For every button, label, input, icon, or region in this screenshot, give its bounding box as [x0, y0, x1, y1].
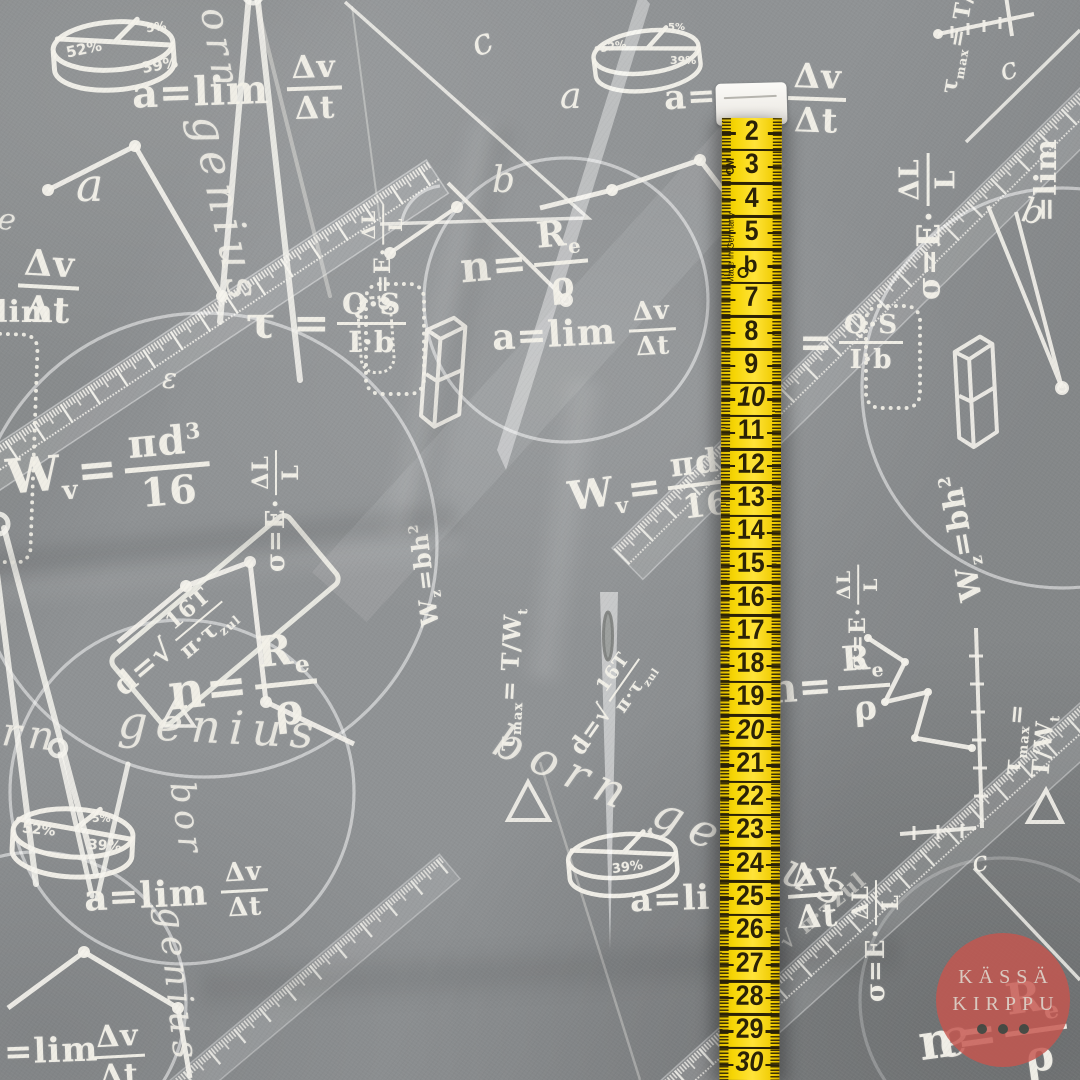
formula-lim-bottom-corner: =lim — [3, 1032, 98, 1069]
tape-number: 5 — [722, 215, 782, 249]
watermark-dots-icon — [977, 1024, 1029, 1034]
script-rn: rn — [0, 709, 64, 761]
tape-body: CM Made in Germany 2345b7891011121314151… — [719, 118, 782, 1080]
pie-label-5-bottom-left: 5% — [92, 812, 111, 825]
tape-number: 25 — [720, 880, 780, 914]
tape-number: 26 — [720, 913, 780, 947]
store-watermark: KÄSSÄ KIRPPU — [936, 933, 1070, 1067]
tape-number: 27 — [720, 947, 780, 981]
tape-number: 2 — [722, 118, 782, 149]
tape-number: 30 — [719, 1046, 779, 1080]
formula-stress-mid-small: σ=E· ΔLL — [360, 205, 405, 311]
watermark-line1: KÄSSÄ — [952, 966, 1054, 989]
tape-number: 16 — [721, 581, 781, 615]
tape-number: 18 — [720, 647, 780, 681]
formula-accel-middle: a=lim ΔvΔt — [491, 298, 678, 368]
tape-number: 20 — [720, 714, 780, 748]
formula-flow-middle: n= Reρ — [456, 215, 591, 312]
measuring-tape: CM Made in Germany 2345b7891011121314151… — [719, 84, 782, 1080]
dotted-box-small — [355, 295, 396, 375]
tape-number: 23 — [720, 814, 780, 848]
pie-label-39-bottom-left: 39% — [87, 837, 122, 855]
tape-number: 17 — [721, 614, 781, 648]
tape-number: 7 — [721, 281, 781, 315]
pie-label-5-top-middle: 5% — [668, 22, 685, 33]
tape-number: 4 — [722, 182, 782, 216]
tape-number: 28 — [720, 980, 780, 1014]
formula-accel-bottom-corner-frac: ΔvΔt — [90, 1021, 146, 1080]
tape-half-cm-tick — [768, 265, 782, 267]
tape-number: 10 — [721, 381, 781, 415]
formula-accel-top-right-lhs: a= — [663, 79, 717, 116]
formula-taumax-right-edge: τmax= T/Wt — [999, 679, 1065, 779]
label-b-triangle: b — [492, 160, 515, 201]
tape-half-cm-tick — [722, 265, 736, 267]
formula-stress-right: σ=E· ΔLL — [897, 153, 960, 300]
eraser-box-drawing-right — [954, 336, 998, 448]
tape-number: 22 — [720, 780, 780, 814]
pie-label-52-bottom-left: 52% — [21, 820, 56, 839]
formula-lim-left-edge: =lim — [0, 298, 54, 328]
tape-number: 11 — [721, 414, 781, 448]
pie-label-5-top-left: 5% — [145, 19, 167, 36]
tape-number: 24 — [720, 847, 780, 881]
tape-number: 29 — [719, 1013, 779, 1047]
tape-number: 19 — [720, 681, 780, 715]
tape-number: 14 — [721, 514, 781, 548]
fabric-product-photo: a=lim ΔvΔt a= ΔvΔt e ΔvΔt =lim τ = Q·SI·… — [0, 0, 1080, 1080]
axis-doodle-drawing — [900, 17, 1000, 840]
tape-number: 21 — [720, 747, 780, 781]
tape-number: 12 — [721, 448, 781, 482]
tape-number: 9 — [721, 348, 781, 382]
tape-number: 8 — [721, 315, 781, 349]
formula-stress-right-small: σ=E· ΔLL — [835, 565, 880, 671]
watermark-line2: KIRPPU — [946, 993, 1059, 1016]
tape-number: 13 — [721, 481, 781, 515]
label-epsilon: ε — [162, 362, 177, 395]
label-a-triangle: a — [560, 76, 581, 117]
script-genius-middle: genius — [117, 695, 323, 760]
tape-number: 3 — [722, 148, 782, 182]
pie-label-39-top-middle: 39% — [670, 54, 696, 67]
label-a-top-left: a — [76, 158, 103, 212]
tape-number: 15 — [721, 547, 781, 581]
formula-accel-bottom-middle-lhs: a=li — [629, 881, 710, 918]
formula-accel-top-right-frac: ΔvΔt — [787, 59, 848, 139]
